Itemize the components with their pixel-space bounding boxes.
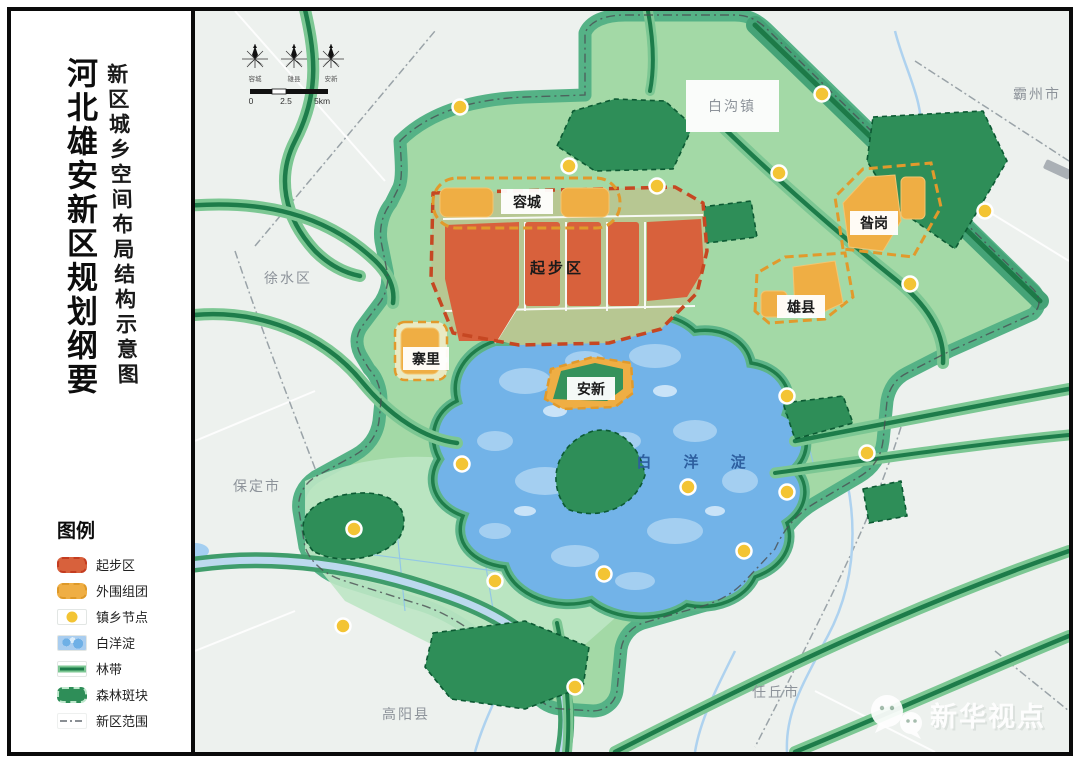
town-node-dot [650, 179, 665, 194]
legend-label: 外围组团 [96, 581, 148, 600]
label-zhaili: 寨里 [411, 351, 440, 367]
town-node-dot [597, 567, 612, 582]
poster-title: 河北雄安新区规划纲要 [57, 57, 102, 397]
legend-label: 起步区 [96, 555, 135, 574]
compass-label-rongcheng: 容城 [249, 74, 263, 83]
legend-item-forest-belt: 林带 [57, 659, 187, 678]
town-node-dot [815, 87, 830, 102]
label-bazhoushi: 霸州市 [1013, 86, 1061, 102]
town-node-swatch [57, 609, 87, 625]
town-node-dot [978, 204, 993, 219]
town-node-dot [860, 446, 875, 461]
map-area: 起步区 容城 昝岗 [195, 11, 1069, 752]
legend-item-cluster: 外围组团 [57, 581, 187, 600]
label-anxin: 安新 [577, 381, 605, 397]
compass-label-anxin: 安新 [325, 74, 339, 83]
legend-item-lake: 白洋淀 [57, 633, 187, 652]
compass-label-xiongxian: 雄县 [288, 74, 302, 83]
map-canvas: 起步区 容城 昝岗 [195, 11, 1069, 752]
scale-end: 5km [314, 96, 330, 106]
town-node-dot [453, 100, 468, 115]
planning-poster: 河北雄安新区规划纲要 新区城乡空间布局结构示意图 图例 起步区 外围组团 镇乡节… [0, 0, 1080, 763]
legend-item-area-boundary: 新区范围 [57, 711, 187, 730]
town-node-dot [336, 619, 351, 634]
label-gaoyangxian: 高阳县 [382, 706, 430, 722]
town-node-dot [681, 480, 696, 495]
label-rongcheng: 容城 [512, 194, 541, 210]
legend-item-town-node: 镇乡节点 [57, 607, 187, 626]
left-panel: 河北雄安新区规划纲要 新区城乡空间布局结构示意图 图例 起步区 外围组团 镇乡节… [11, 11, 195, 752]
legend-label: 白洋淀 [96, 633, 135, 652]
label-xushuiqu: 徐水区 [264, 270, 312, 286]
town-node-dot [737, 544, 752, 559]
town-node-dot [780, 485, 795, 500]
label-start-area: 起步区 [529, 260, 584, 277]
legend-item-forest-patch: 森林斑块 [57, 685, 187, 704]
label-lake-baiyangdian: 白 洋 淀 [636, 453, 759, 471]
town-node-dot [562, 159, 577, 174]
label-baigouzhen: 白沟镇 [708, 98, 756, 114]
legend-item-start-area: 起步区 [57, 555, 187, 574]
legend-label: 林带 [96, 659, 122, 678]
legend-label: 新区范围 [96, 711, 148, 730]
forest-patch-swatch [57, 687, 87, 703]
legend-title: 图例 [57, 516, 187, 543]
scale-mid: 2.5 [280, 96, 292, 106]
town-node-dot [772, 166, 787, 181]
label-renqiushi: 任丘市 [752, 684, 800, 700]
scale-start: 0 [249, 96, 254, 106]
legend: 图例 起步区 外围组团 镇乡节点 白洋淀 林带 [57, 516, 187, 737]
town-node-dot [488, 574, 503, 589]
legend-label: 森林斑块 [96, 685, 148, 704]
forest-belt-swatch [57, 661, 87, 677]
label-zangang: 昝岗 [860, 215, 888, 231]
town-node-dot [903, 277, 918, 292]
town-node-dot [347, 522, 362, 537]
watermark-text: 新华视点 [930, 701, 1046, 732]
lake-swatch [57, 635, 87, 651]
town-node-dot [455, 457, 470, 472]
poster-subtitle: 新区城乡空间布局结构示意图 [100, 63, 141, 388]
town-node-dot [568, 680, 583, 695]
district-zhaili: 寨里 [395, 322, 449, 380]
label-baodingshi: 保定市 [233, 478, 281, 494]
label-xiongxian: 雄县 [786, 299, 815, 315]
cluster-swatch [57, 583, 87, 599]
legend-label: 镇乡节点 [96, 607, 148, 626]
town-node-dot [780, 389, 795, 404]
start-area-swatch [57, 557, 87, 573]
area-boundary-swatch [57, 713, 87, 729]
